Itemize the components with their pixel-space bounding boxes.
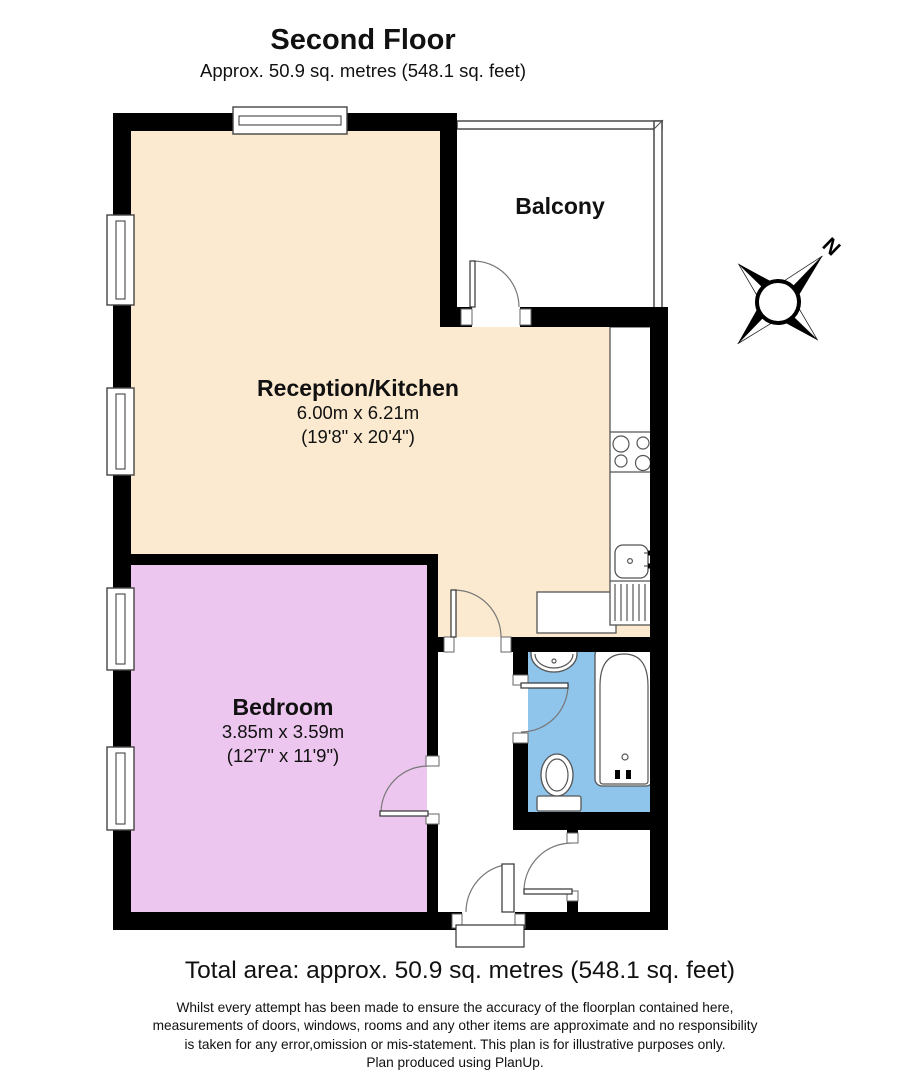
kitchen-counter: [610, 327, 653, 625]
disclaimer-line: measurements of doors, windows, rooms an…: [153, 1017, 758, 1035]
balcony-label: Balcony: [515, 193, 604, 220]
floorplan-drawing: N: [0, 0, 909, 1080]
wall-balcony-divider: [440, 113, 457, 327]
disclaimer-line: Plan produced using PlanUp.: [153, 1054, 758, 1072]
wall-bathroom-bottom: [513, 812, 668, 830]
balcony-wall-top: [457, 121, 662, 129]
page-subtitle: Approx. 50.9 sq. metres (548.1 sq. feet): [200, 60, 526, 82]
wall-right: [650, 307, 668, 930]
compass-icon: N: [698, 200, 879, 381]
reception-name: Reception/Kitchen: [257, 375, 459, 401]
entrance-door: [456, 864, 524, 947]
page-title: Second Floor: [270, 24, 455, 57]
wall-bedroom-top: [113, 554, 437, 565]
closet-door: [524, 843, 572, 894]
reception-dims-imperial: (19'8" x 20'4"): [257, 425, 459, 449]
wall-bedroom-right-upper: [427, 554, 438, 766]
floorplan-page: N Second Floor Approx. 50.9 sq. metres (…: [0, 0, 909, 1080]
window-left-1: [107, 215, 134, 305]
disclaimer-line: Whilst every attempt has been made to en…: [153, 999, 758, 1017]
bedroom-dims-metric: 3.85m x 3.59m: [222, 720, 344, 744]
wall-bottom-left: [113, 912, 462, 930]
total-area-text: Total area: approx. 50.9 sq. metres (548…: [185, 957, 735, 985]
window-top: [233, 107, 347, 134]
kitchen-counter-return: [537, 592, 616, 633]
entrance-threshold: [456, 925, 524, 947]
window-left-3: [107, 588, 134, 670]
wall-bottom-right: [515, 912, 668, 930]
wall-bedroom-right-lower: [427, 814, 438, 912]
reception-label: Reception/Kitchen 6.00m x 6.21m (19'8" x…: [257, 375, 459, 449]
balcony-wall-right: [654, 121, 662, 313]
disclaimer: Whilst every attempt has been made to en…: [153, 999, 758, 1073]
window-left-2: [107, 388, 134, 475]
window-left-4: [107, 747, 134, 830]
kitchen-sink-icon: [615, 545, 653, 578]
room-floors: [131, 124, 660, 912]
bedroom-label: Bedroom 3.85m x 3.59m (12'7" x 11'9"): [222, 694, 344, 768]
bedroom-dims-imperial: (12'7" x 11'9"): [222, 744, 344, 768]
disclaimer-line: is taken for any error,omission or mis-s…: [153, 1036, 758, 1054]
bath-icon: [595, 648, 653, 786]
reception-dims-metric: 6.00m x 6.21m: [257, 401, 459, 425]
wall-below-balcony-right: [520, 307, 668, 327]
bedroom-name: Bedroom: [222, 694, 344, 720]
